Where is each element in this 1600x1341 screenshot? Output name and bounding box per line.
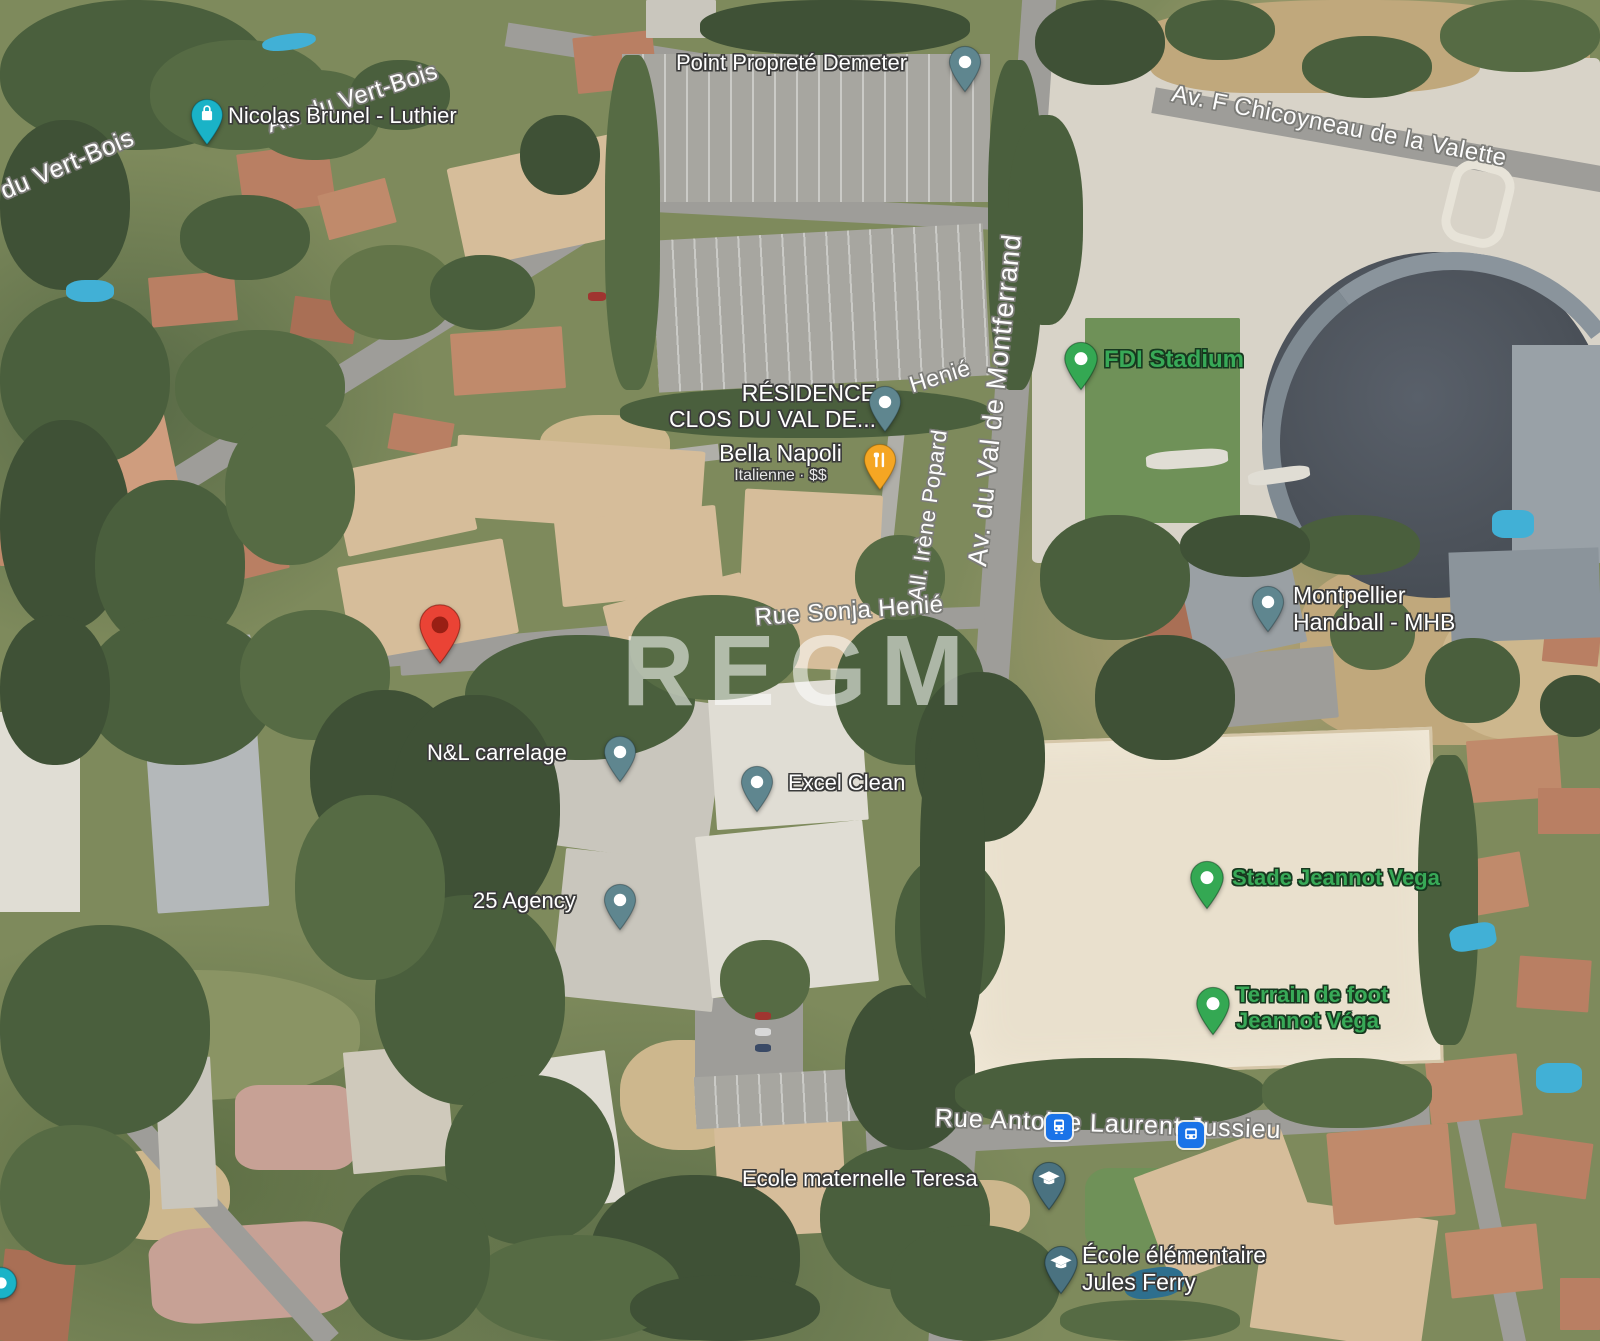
watermark: REGM: [622, 614, 978, 729]
place-label-ecole-maternelle[interactable]: Ecole maternelle Teresa: [742, 1166, 978, 1192]
place-label-line: Terrain de foot: [1236, 982, 1388, 1008]
tree-canopy: [0, 615, 110, 765]
place-label-line: Handball - MHB: [1293, 609, 1455, 636]
place-label-terrain-foot[interactable]: Terrain de foot Jeannot Véga: [1236, 982, 1388, 1034]
vehicle: [755, 1044, 771, 1052]
place-label-mhb[interactable]: Montpellier Handball - MHB: [1293, 582, 1455, 636]
poi-dot-icon: [1201, 871, 1214, 884]
road: [1451, 1089, 1527, 1341]
marker-fdi-stadium[interactable]: [1063, 341, 1099, 396]
poi-dot-icon: [879, 396, 891, 408]
place-label-line: École élémentaire: [1082, 1242, 1266, 1269]
place-label-ecole-elementaire[interactable]: École élémentaire Jules Ferry: [1082, 1242, 1266, 1296]
stadium-annex: [1448, 547, 1600, 642]
place-label-line: Montpellier: [1293, 582, 1455, 609]
marker-mhb[interactable]: [1251, 585, 1285, 638]
place-label-nicolas-brunel[interactable]: Nicolas Brunel - Luthier: [228, 103, 457, 129]
poi-dot-icon: [1075, 352, 1088, 365]
place-label-line: CLOS DU VAL DE...: [586, 406, 876, 432]
tree-canopy: [630, 1275, 820, 1341]
building: [1560, 1278, 1600, 1330]
poi-dot-icon: [959, 56, 971, 68]
building: [1538, 788, 1600, 834]
tram-stop-icon[interactable]: [1046, 1114, 1072, 1140]
road-label-popard: All. Irène Popard: [903, 428, 953, 602]
tree-canopy: [720, 940, 810, 1020]
place-label-25-agency[interactable]: 25 Agency: [473, 888, 576, 914]
building: [450, 326, 566, 396]
tree-canopy: [1425, 638, 1520, 723]
tree-canopy: [1035, 0, 1165, 85]
building: [1425, 1053, 1523, 1124]
marker-nicolas-brunel[interactable]: [190, 98, 224, 151]
tree-canopy: [1302, 36, 1432, 98]
tree-canopy: [920, 715, 985, 1045]
tree-canopy: [0, 925, 210, 1135]
poi-dot-icon: [1207, 997, 1220, 1010]
parking-lot: [622, 54, 990, 202]
bus-glyph: [1181, 1125, 1201, 1145]
vehicle: [755, 1028, 771, 1036]
place-label-stade-vega[interactable]: Stade Jeannot Vega: [1232, 865, 1440, 891]
poi-dot-icon: [614, 746, 626, 758]
tree-canopy: [890, 1225, 1060, 1341]
tree-canopy: [340, 1175, 490, 1340]
tree-canopy: [1095, 635, 1235, 760]
place-label-line: Jules Ferry: [1082, 1269, 1266, 1296]
building: [1326, 1123, 1456, 1225]
place-label-nl-carrelage[interactable]: N&L carrelage: [427, 740, 567, 766]
marker-point-proprete[interactable]: [948, 45, 982, 98]
tree-canopy: [225, 415, 355, 565]
place-label-point-proprete[interactable]: Point Propreté Demeter: [676, 50, 907, 76]
place-label-bella-napoli[interactable]: Bella Napoli Italienne · $$: [688, 440, 873, 485]
marker-residence[interactable]: [868, 385, 902, 438]
tree-canopy: [520, 115, 600, 195]
marker-ecole-elementaire[interactable]: [1043, 1245, 1079, 1300]
place-label-line: Bella Napoli: [688, 440, 873, 467]
tree-canopy: [1180, 515, 1310, 577]
destination-pin[interactable]: [417, 603, 463, 670]
marker-excel-clean[interactable]: [740, 765, 774, 818]
tree-canopy: [180, 195, 310, 280]
place-label-excel-clean[interactable]: Excel Clean: [788, 770, 905, 796]
marker-stade-vega[interactable]: [1189, 860, 1225, 915]
pool: [1536, 1063, 1582, 1093]
building: [1505, 1133, 1594, 1200]
place-label-residence[interactable]: RÉSIDENCE CLOS DU VAL DE...: [586, 380, 876, 432]
building: [148, 270, 238, 327]
building: [1445, 1223, 1543, 1298]
bus-stop-icon[interactable]: [1178, 1122, 1204, 1148]
place-label-fdi-stadium[interactable]: FDI Stadium: [1104, 346, 1244, 374]
pool: [66, 280, 114, 302]
vehicle: [588, 292, 606, 301]
place-label-line: RÉSIDENCE: [586, 380, 876, 406]
tree-canopy: [0, 1125, 150, 1265]
marker-ecole-maternelle[interactable]: [1031, 1161, 1067, 1216]
poi-dot-icon: [1262, 596, 1274, 608]
tree-canopy: [1060, 1300, 1240, 1341]
marker-edge-partial[interactable]: [0, 1266, 18, 1305]
tree-canopy: [430, 255, 535, 330]
tree-canopy: [1440, 0, 1600, 72]
vehicle: [755, 1012, 771, 1020]
pool: [1492, 510, 1534, 538]
tree-canopy: [1040, 515, 1190, 640]
poi-dot-icon: [751, 776, 763, 788]
tree-canopy: [605, 55, 660, 390]
tree-canopy: [1418, 755, 1478, 1045]
tree-canopy: [700, 0, 970, 55]
tree-canopy: [1262, 1058, 1432, 1128]
tree-canopy: [1165, 0, 1275, 60]
marker-nl-carrelage[interactable]: [603, 735, 637, 788]
tree-canopy: [1540, 675, 1600, 737]
poi-dot-icon: [614, 894, 626, 906]
place-label-line: Jeannot Véga: [1236, 1008, 1388, 1034]
tram-glyph: [1049, 1117, 1069, 1137]
tree-canopy: [295, 795, 445, 980]
marker-bella-napoli[interactable]: [863, 443, 897, 496]
terrain-patch: [235, 1085, 355, 1170]
building: [1516, 956, 1591, 1013]
marker-terrain-foot[interactable]: [1195, 986, 1231, 1041]
marker-25-agency[interactable]: [603, 883, 637, 936]
place-label-subtitle: Italienne · $$: [688, 467, 873, 485]
map-canvas[interactable]: REGM Av. du Vert-Bois du Vert-Bois Av. F…: [0, 0, 1600, 1341]
